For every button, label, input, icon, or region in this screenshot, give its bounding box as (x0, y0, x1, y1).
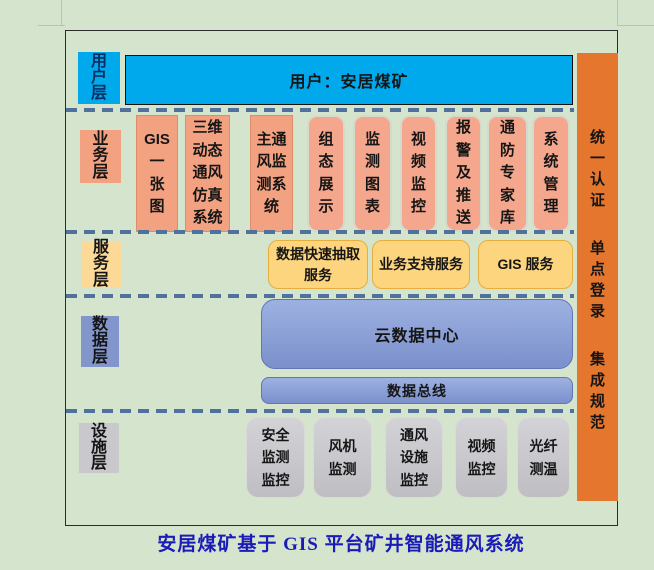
corner-mark-top-right-h (617, 25, 654, 26)
fac-safety-monitoring: 安全 监测 监控 (246, 417, 305, 498)
layer-label-data: 数 据 层 (81, 316, 119, 367)
svc-fast-data-extraction: 数据快速抽取 服务 (268, 240, 368, 289)
auth-single-sign-on: 单 点 登 录 (590, 238, 605, 322)
layer-label-user: 用 户 层 (78, 52, 120, 104)
diagram-title: 安居煤矿基于 GIS 平台矿井智能通风系统 (65, 529, 617, 556)
corner-mark-top-right-v (617, 0, 618, 26)
data-data-bus: 数据总线 (261, 377, 573, 404)
fac-fiber-temperature: 光纤 测温 (517, 417, 570, 498)
data-cloud-data-center: 云数据中心 (261, 299, 573, 369)
layer-label-business: 业 务 层 (80, 130, 121, 183)
biz-alarm-and-push: 报 警 及 推 送 (445, 115, 482, 232)
divider-user-business (66, 108, 574, 112)
divider-business-service (66, 230, 574, 234)
svc-business-support: 业务支持服务 (372, 240, 470, 289)
biz-video-surveillance: 视 频 监 控 (400, 115, 437, 232)
biz-monitoring-charts: 监 测 图 表 (353, 115, 392, 232)
layer-label-facility: 设 施 层 (79, 423, 119, 473)
fac-fan-monitoring: 风机 监测 (313, 417, 372, 498)
auth-integration-standard: 集 成 规 范 (590, 349, 605, 433)
divider-service-data (66, 294, 574, 298)
biz-scada-display: 组 态 展 示 (307, 115, 345, 232)
biz-ventilation-expert-db: 通 防 专 家 库 (487, 115, 528, 232)
biz-3d-ventilation-sim: 三维 动态 通风 仿真 系统 (185, 115, 230, 232)
biz-gis-one-map: GIS 一 张 图 (136, 115, 178, 232)
auth-sidebar: 统 一 认 证 单 点 登 录 集 成 规 范 (577, 53, 618, 501)
user-box-anju-coal-mine: 用户：安居煤矿 (125, 55, 573, 105)
corner-mark-top-left-v (61, 0, 62, 26)
svc-gis-service: GIS 服务 (478, 240, 573, 289)
biz-system-management: 系 统 管 理 (532, 115, 570, 232)
divider-data-facility (66, 409, 574, 413)
fac-ventilation-facilities: 通风 设施 监控 (385, 417, 443, 498)
layer-label-service: 服 务 层 (81, 241, 121, 288)
auth-unified-authentication: 统 一 认 证 (590, 127, 605, 211)
diagram-canvas: 统 一 认 证 单 点 登 录 集 成 规 范 用 户 层 用户：安居煤矿 业 … (0, 0, 654, 570)
fac-video-surveillance: 视频 监控 (455, 417, 508, 498)
biz-main-fan-monitor: 主通 风监 测系 统 (250, 115, 293, 232)
